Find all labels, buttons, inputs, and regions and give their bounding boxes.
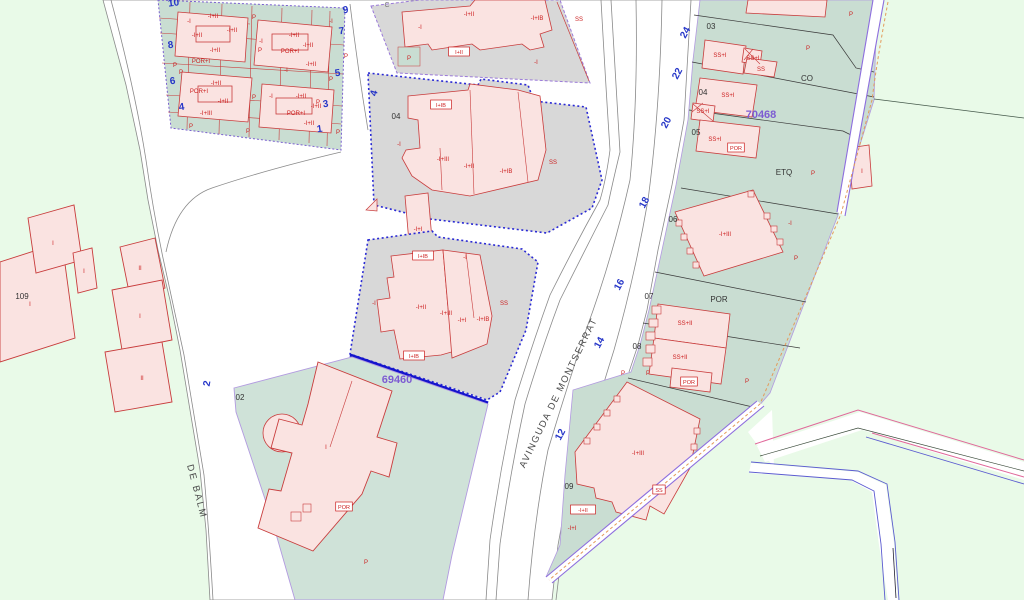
- construction-label: P: [806, 46, 810, 52]
- construction-label: -I: [418, 25, 422, 31]
- construction-label: -I: [397, 142, 401, 148]
- construction-label: -I+I: [458, 318, 467, 324]
- construction-label: P: [364, 560, 368, 566]
- parcel-number-label: 04: [392, 112, 401, 121]
- parcel-number-label: 03: [707, 22, 716, 31]
- construction-label: POR+I: [287, 111, 306, 117]
- construction-label: SS: [500, 301, 508, 307]
- construction-label: -I+II: [296, 94, 307, 100]
- construction-label: SS: [757, 67, 765, 73]
- construction-label: POR+I: [190, 89, 209, 95]
- cadastral-map: AVINGUDA DE MONTSERRAT CARRER DE BALM 02…: [0, 0, 1024, 600]
- construction-label: P: [179, 70, 183, 76]
- boxed-construction-label: SS: [655, 488, 663, 494]
- parcel-number-label: POR: [710, 295, 728, 304]
- construction-label: SS: [575, 17, 583, 23]
- parcel-number-label: ETQ: [776, 168, 792, 177]
- construction-label: -I+II: [211, 81, 222, 87]
- construction-label: -I+II: [192, 33, 203, 39]
- construction-label: -I: [187, 19, 191, 25]
- construction-label: -I+III: [437, 157, 450, 163]
- construction-label: -I: [284, 68, 288, 74]
- parcel-number-label: 05: [692, 128, 701, 137]
- boxed-construction-label: I+IB: [409, 354, 419, 360]
- street-hint-label: C: [384, 2, 389, 9]
- construction-label: SS+I: [721, 93, 735, 99]
- boxed-construction-label: I+IB: [436, 103, 446, 109]
- boxed-construction-label: I+II: [455, 50, 463, 56]
- finca-reference-label: 69460: [382, 374, 413, 386]
- construction-label: -I+IB: [531, 16, 544, 22]
- construction-label: -I: [534, 60, 538, 66]
- parcel-number-label: 109: [15, 292, 29, 301]
- construction-label: -I+II: [304, 121, 315, 127]
- construction-label: SS: [549, 160, 557, 166]
- construction-label: P: [794, 256, 798, 262]
- parcel-number-label: 08: [633, 342, 642, 351]
- construction-label: -I: [329, 19, 333, 25]
- construction-label: P: [246, 129, 250, 135]
- construction-label: -I+II: [464, 12, 475, 18]
- construction-label: -I+III: [200, 111, 213, 117]
- construction-label: SS+II: [673, 355, 688, 361]
- construction-label: P: [745, 379, 749, 385]
- boxed-construction-label: -I+II: [578, 508, 588, 514]
- construction-label: P: [336, 130, 340, 136]
- construction-label: P: [407, 56, 411, 62]
- construction-label: P: [344, 54, 348, 60]
- parcel-number-label: 09: [565, 482, 574, 491]
- finca-reference-label: 70468: [746, 109, 777, 121]
- construction-label: P: [316, 100, 320, 106]
- construction-label: -I+III: [719, 232, 732, 238]
- construction-label: -I+II: [416, 305, 427, 311]
- construction-label: -I+III: [440, 311, 453, 317]
- street-number-label: 10: [167, 0, 180, 10]
- construction-label: -I+II: [208, 14, 219, 20]
- construction-label: -I: [788, 221, 792, 227]
- construction-label: P: [811, 171, 815, 177]
- construction-label: -I+II: [303, 43, 314, 49]
- parcel-number-label: 06: [669, 215, 678, 224]
- boxed-construction-label: I+IB: [418, 254, 428, 260]
- construction-label: P: [329, 77, 333, 83]
- construction-label: P: [849, 12, 853, 18]
- construction-label: -I: [372, 301, 376, 307]
- construction-label: -I: [269, 94, 273, 100]
- construction-label: -I+IB: [477, 317, 490, 323]
- construction-label: P: [252, 15, 256, 21]
- construction-label: SS+I: [713, 53, 727, 59]
- construction-label: II: [138, 266, 142, 272]
- construction-label: -I+II: [464, 164, 475, 170]
- parcel-number-label: 04: [699, 88, 708, 97]
- construction-label: P: [252, 95, 256, 101]
- construction-label: -I: [259, 39, 263, 45]
- construction-label: POR+I: [281, 49, 300, 55]
- construction-label: -I+III: [632, 451, 645, 457]
- parcel-number-label: CO: [801, 74, 813, 83]
- construction-label: P: [258, 48, 262, 54]
- construction-label: -I+IB: [500, 169, 513, 175]
- construction-label: -I+I: [414, 227, 423, 233]
- building[interactable]: [402, 84, 546, 196]
- construction-label: SS+II: [678, 321, 693, 327]
- construction-label: P: [173, 63, 177, 69]
- construction-label: -I+II: [306, 62, 317, 68]
- construction-label: SS+I: [708, 137, 722, 143]
- cadastral-map-viewport[interactable]: AVINGUDA DE MONTSERRAT CARRER DE BALM 02…: [0, 0, 1024, 600]
- construction-label: -I+II: [210, 48, 221, 54]
- construction-label: -I+II: [218, 99, 229, 105]
- construction-label: P: [646, 371, 650, 377]
- construction-label: II: [140, 376, 144, 382]
- parcel-number-label: 07: [645, 292, 654, 301]
- construction-label: P: [621, 371, 625, 377]
- construction-label: -I+II: [227, 28, 238, 34]
- construction-label: SS+I: [746, 56, 760, 62]
- construction-label: SS+I: [696, 109, 710, 115]
- construction-label: -I+II: [289, 33, 300, 39]
- parcel-number-label: 02: [236, 393, 245, 402]
- boxed-construction-label: POR: [338, 505, 350, 511]
- construction-label: POR+I: [192, 59, 211, 65]
- construction-label: -I+I: [568, 526, 577, 532]
- parcel-top-middle[interactable]: [371, 0, 590, 83]
- construction-label: -I: [463, 255, 467, 261]
- boxed-construction-label: POR: [730, 146, 742, 152]
- boxed-construction-label: POR: [683, 380, 695, 386]
- construction-label: P: [189, 124, 193, 130]
